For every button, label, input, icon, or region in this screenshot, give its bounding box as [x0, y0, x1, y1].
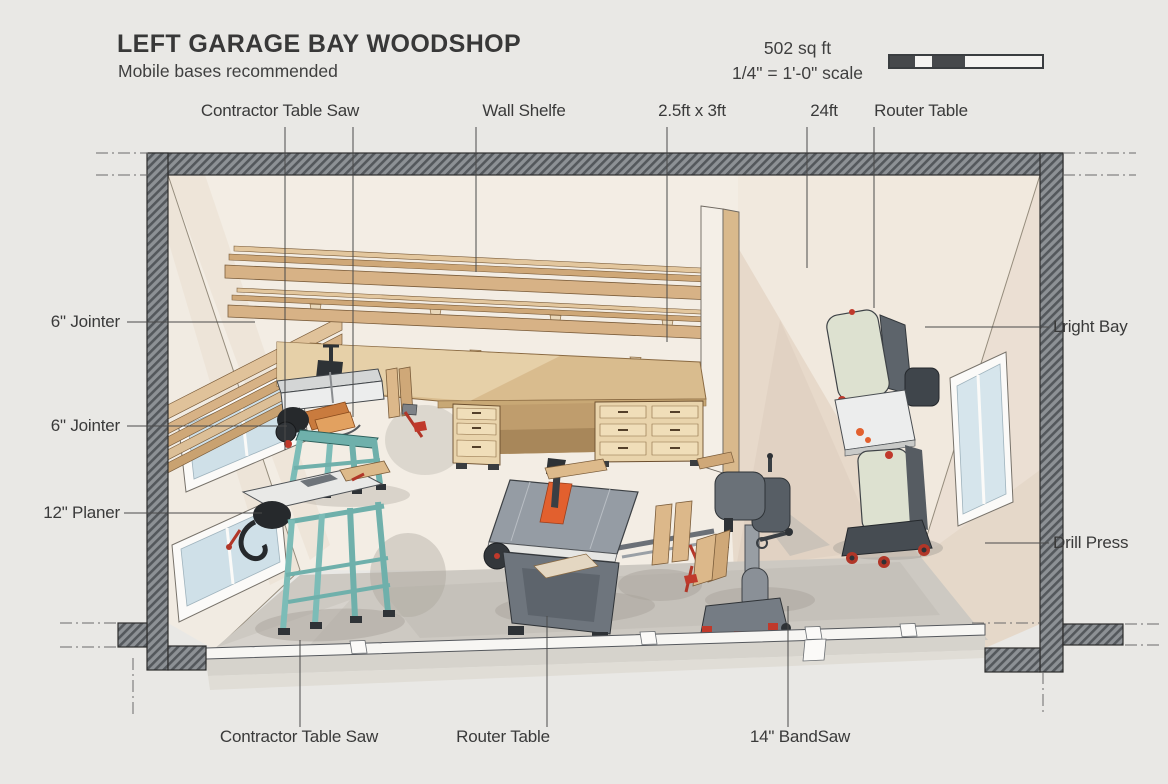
label-planer: 12" Planer	[16, 503, 120, 523]
woodshop-floorplan-page: LEFT GARAGE BAY WOODSHOP Mobile bases re…	[0, 0, 1168, 784]
label-router-table-top: Router Table	[874, 101, 968, 121]
label-bay-length: 24ft	[810, 101, 838, 121]
label-drill-press: Drill Press	[1053, 533, 1128, 553]
right-window	[950, 352, 1013, 526]
label-bandsaw: 14" BandSaw	[750, 727, 850, 747]
scale-bar	[888, 54, 1044, 69]
page-subtitle: Mobile bases recommended	[118, 61, 338, 82]
scale-bar-segment	[915, 56, 932, 67]
label-contractor-table-saw-top: Contractor Table Saw	[201, 101, 359, 121]
label-wall-shelf: Wall Shelfe	[482, 101, 565, 121]
plan-info: 502 sq ft 1/4" = 1'-0" scale	[700, 36, 895, 86]
label-router-table-bottom: Router Table	[456, 727, 550, 747]
label-contractor-table-saw-bottom: Contractor Table Saw	[220, 727, 378, 747]
label-bench-size: 2.5ft x 3ft	[658, 101, 726, 121]
scale-bar-segment	[932, 56, 965, 67]
partition-wall	[701, 206, 739, 481]
floorplan-illustration	[0, 0, 1168, 784]
label-jointer-2: 6" Jointer	[16, 416, 120, 436]
label-light-bay: Lright Bay	[1053, 317, 1128, 337]
scale-text: 1/4" = 1'-0" scale	[700, 61, 895, 86]
scale-bar-segment	[890, 56, 915, 67]
page-title: LEFT GARAGE BAY WOODSHOP	[117, 30, 521, 59]
label-jointer-1: 6" Jointer	[16, 312, 120, 332]
area-text: 502 sq ft	[700, 36, 895, 61]
scale-bar-segment	[965, 56, 1042, 67]
